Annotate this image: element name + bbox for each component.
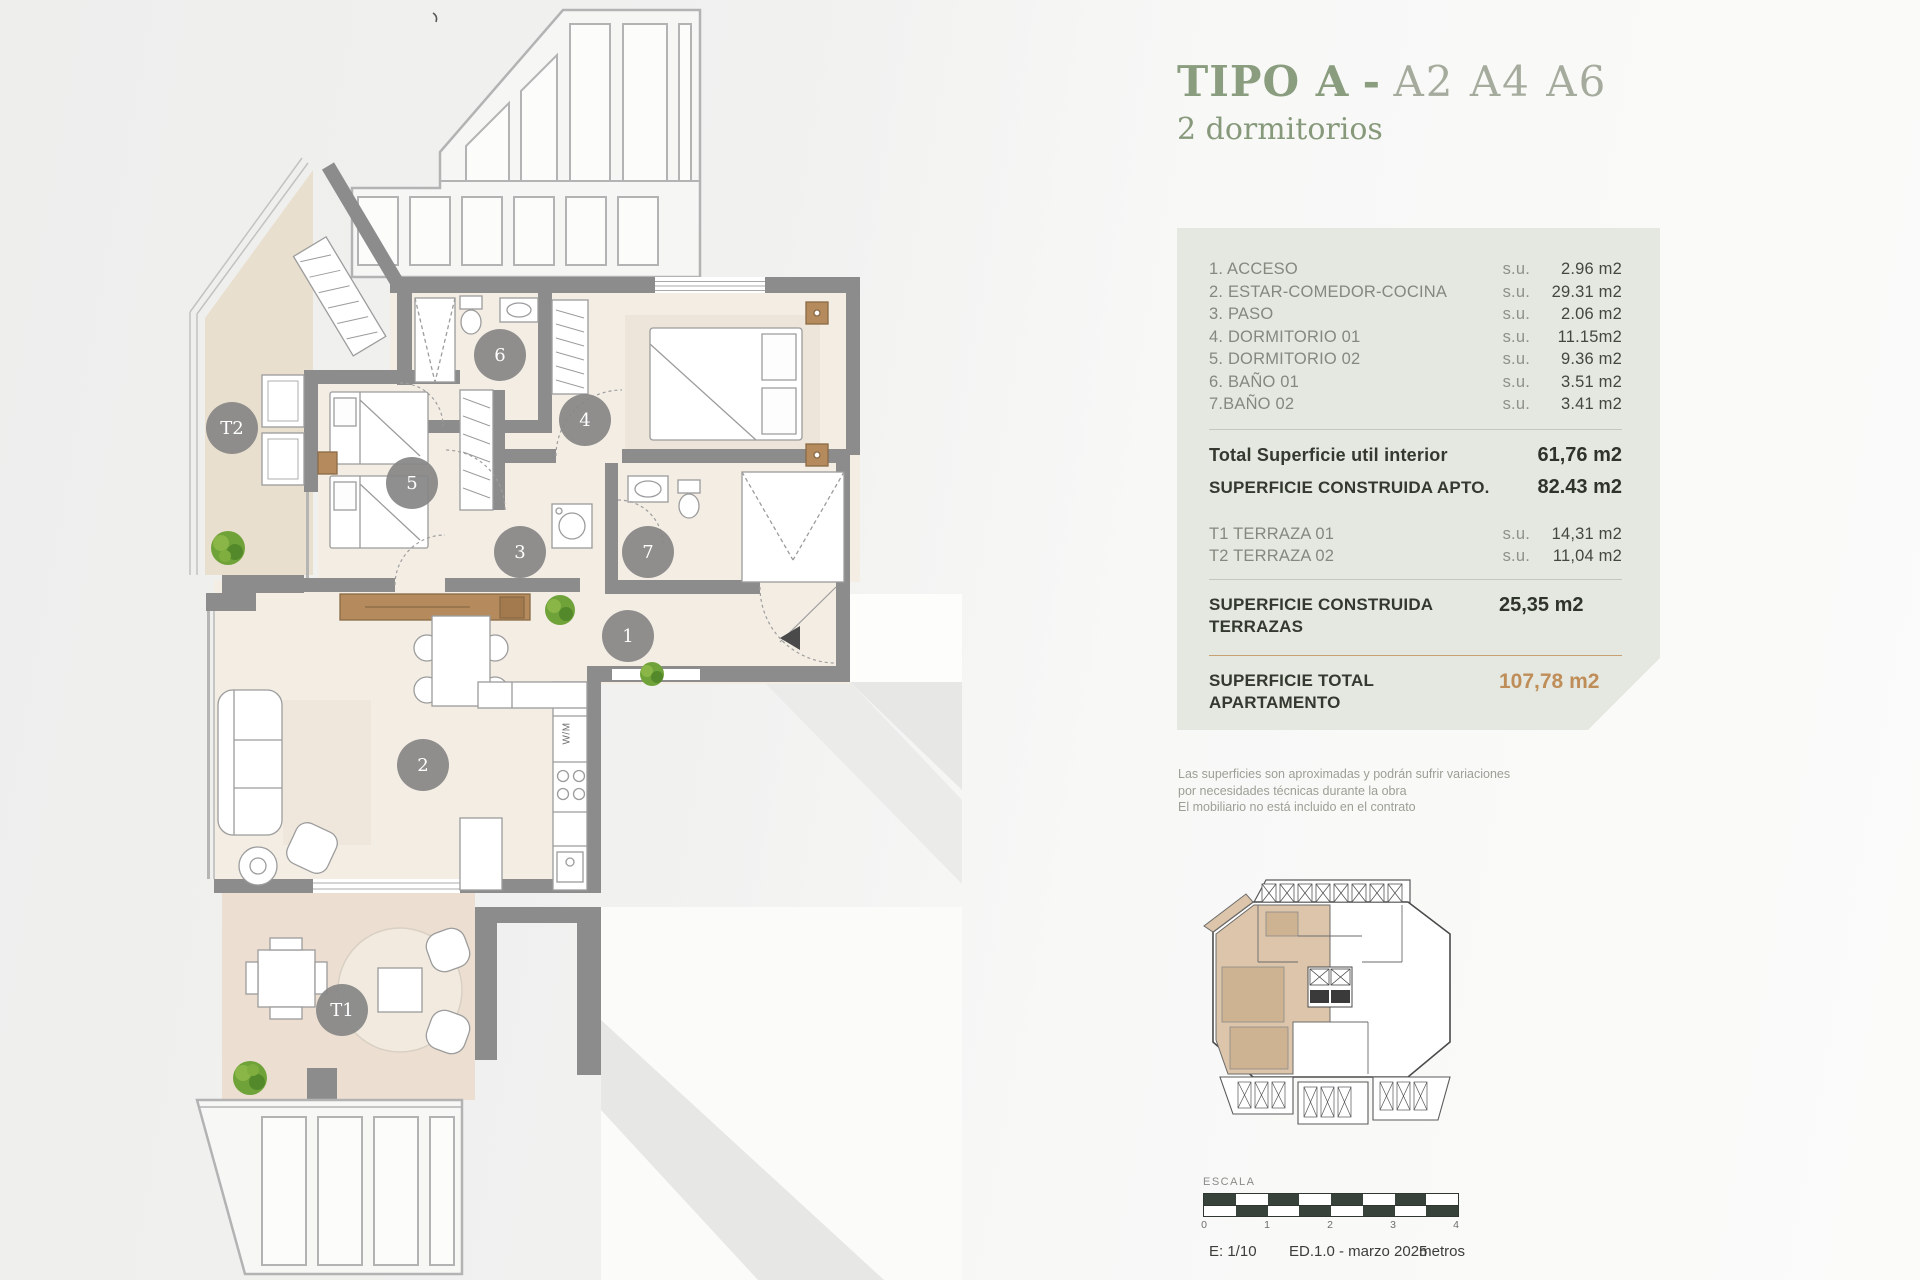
page-title: TIPO A - A2 A4 A6 2 dormitorios <box>1177 58 1607 147</box>
terrace-row: T1 TERRAZA 01 s.u. 14,31 m2 <box>1209 523 1622 546</box>
total-interior-row: Total Superficie util interior 61,76 m2 <box>1209 444 1622 467</box>
scale-ticks: 0 1 2 3 4 <box>1203 1219 1459 1233</box>
grand-total-row: SUPERFICIE TOTAL APARTAMENTO 107,78 m2 <box>1209 670 1622 714</box>
floor-plan: T2 5 6 4 3 7 1 2 T1 W/M <box>0 0 970 1280</box>
terrace-marker-t2: T2 <box>206 402 258 454</box>
divider <box>1209 429 1622 430</box>
room-marker-6: 6 <box>474 329 526 381</box>
bedrooms-subtitle: 2 dormitorios <box>1177 112 1607 147</box>
room-marker-2: 2 <box>397 739 449 791</box>
total-construida-row: SUPERFICIE CONSTRUIDA APTO. 82.43 m2 <box>1209 476 1622 499</box>
edition-label: ED.1.0 - marzo 2025 <box>1289 1243 1427 1260</box>
key-plan <box>1158 872 1503 1145</box>
terrace-row: T2 TERRAZA 02 s.u. 11,04 m2 <box>1209 545 1622 568</box>
scale-graphic <box>1203 1193 1459 1217</box>
type-label: TIPO A <box>1177 57 1349 106</box>
unit-codes: A2 A4 A6 <box>1393 57 1607 106</box>
scale-label: ESCALA <box>1203 1176 1459 1188</box>
area-row: 3. PASO s.u. 2.06 m2 <box>1209 303 1622 326</box>
disclaimer-text: Las superficies son aproximadas y podrán… <box>1178 766 1510 816</box>
terrace-marker-t1: T1 <box>316 984 368 1036</box>
scale-ratio: E: 1/10 <box>1209 1243 1257 1260</box>
room-marker-3: 3 <box>494 526 546 578</box>
room-marker-7: 7 <box>622 526 674 578</box>
scale-bar: ESCALA 0 1 2 3 4 E: 1/10 ED.1.0 - marzo … <box>1203 1176 1459 1263</box>
area-row: 2. ESTAR-COMEDOR-COCINA s.u. 29.31 m2 <box>1209 281 1622 304</box>
washing-machine-label: W/M <box>562 722 573 744</box>
terraces-total-row: SUPERFICIE CONSTRUIDA TERRAZAS 25,35 m2 <box>1209 594 1622 638</box>
units-label: metros <box>1419 1243 1465 1260</box>
brochure-page: T2 5 6 4 3 7 1 2 T1 W/M TIPO A - A2 A4 A… <box>0 0 1920 1280</box>
divider-accent <box>1209 655 1622 656</box>
area-row: 6. BAÑO 01 s.u. 3.51 m2 <box>1209 371 1622 394</box>
terraces-block: T1 TERRAZA 01 s.u. 14,31 m2 T2 TERRAZA 0… <box>1209 523 1622 568</box>
areas-panel: 1. ACCESO s.u. 2.96 m2 2. ESTAR-COMEDOR-… <box>1177 228 1660 730</box>
title-separator: - <box>1363 57 1380 106</box>
area-row: 7.BAÑO 02 s.u. 3.41 m2 <box>1209 393 1622 416</box>
area-row: 1. ACCESO s.u. 2.96 m2 <box>1209 258 1622 281</box>
divider <box>1209 579 1622 580</box>
floor-plan-drawing <box>0 0 970 1280</box>
room-marker-1: 1 <box>602 610 654 662</box>
area-row: 4. DORMITORIO 01 s.u. 11.15m2 <box>1209 326 1622 349</box>
room-marker-4: 4 <box>559 394 611 446</box>
room-marker-5: 5 <box>386 457 438 509</box>
area-row: 5. DORMITORIO 02 s.u. 9.36 m2 <box>1209 348 1622 371</box>
